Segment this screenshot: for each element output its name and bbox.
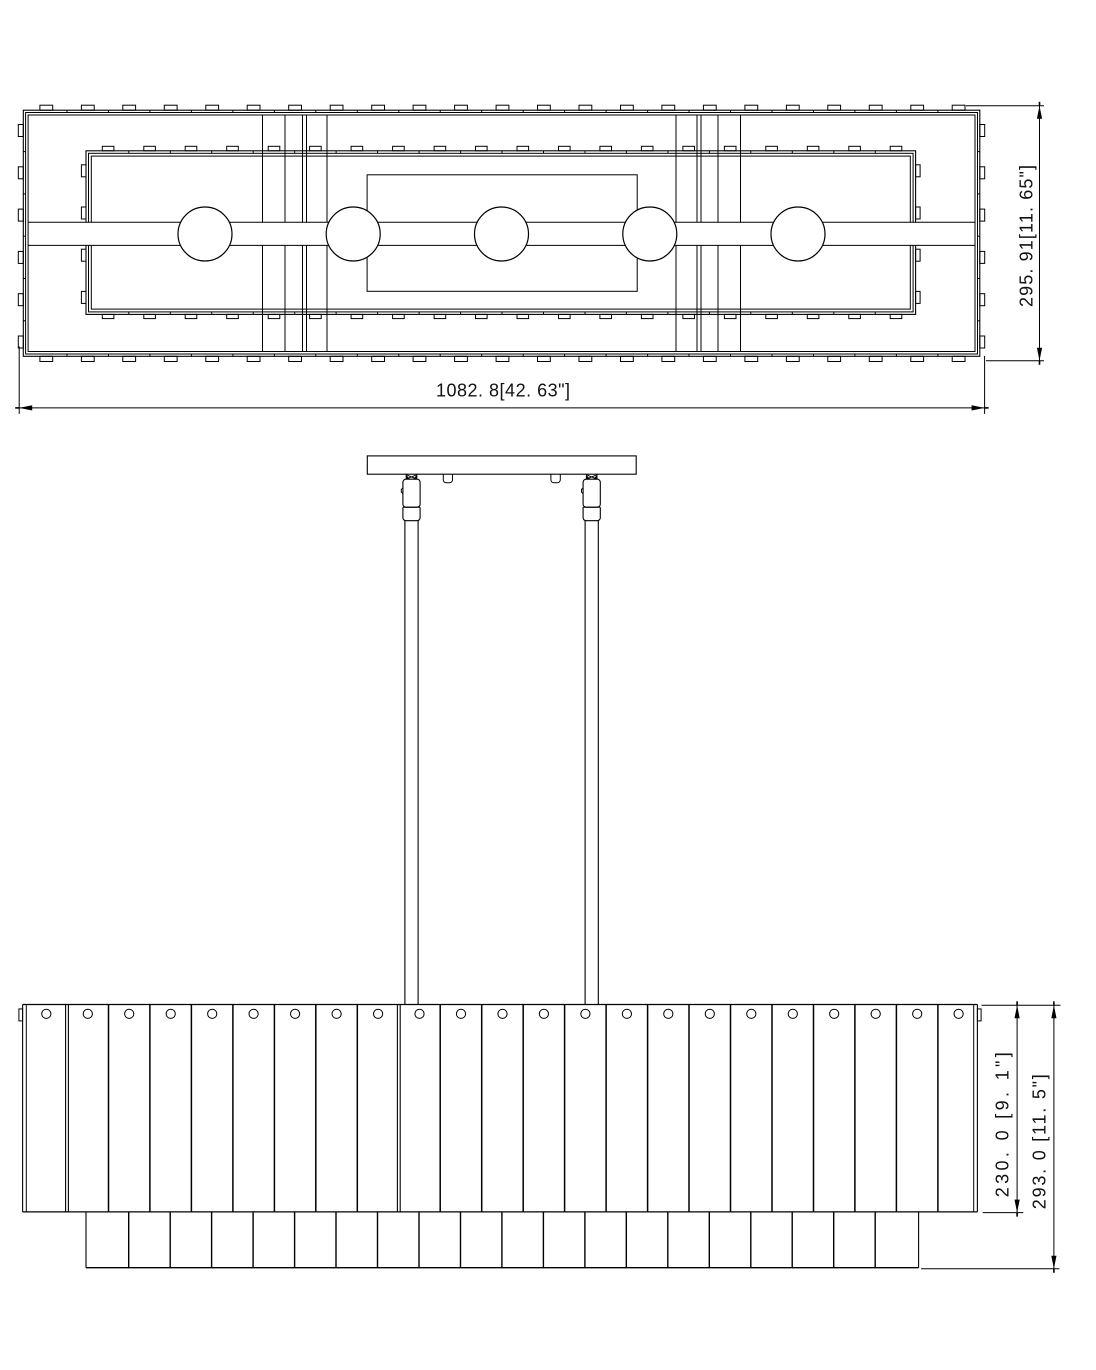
svg-text:1082. 8[42. 63"]: 1082. 8[42. 63"] — [436, 381, 570, 401]
svg-text:293. 0 [11. 5"]: 293. 0 [11. 5"] — [1030, 1074, 1050, 1209]
svg-text:230. 0 [9. 1"]: 230. 0 [9. 1"] — [993, 1052, 1013, 1197]
svg-text:295. 91[11. 65"]: 295. 91[11. 65"] — [1017, 165, 1037, 307]
